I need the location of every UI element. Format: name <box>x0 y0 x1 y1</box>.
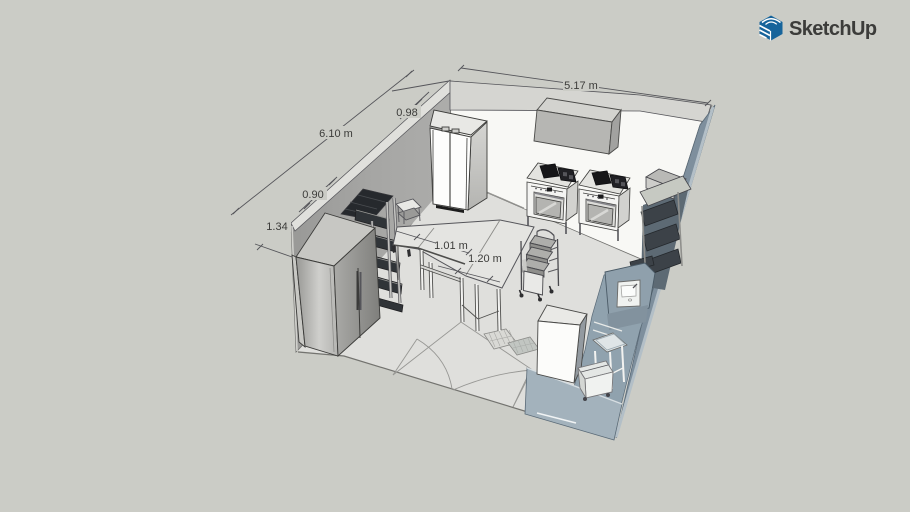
svg-text:5.17 m: 5.17 m <box>564 80 598 92</box>
svg-text:SketchUp: SketchUp <box>789 18 877 40</box>
svg-text:6.10 m: 6.10 m <box>319 128 353 140</box>
svg-text:1.34: 1.34 <box>266 221 287 233</box>
svg-text:0.98: 0.98 <box>396 107 417 119</box>
svg-text:0.90: 0.90 <box>302 189 323 201</box>
svg-text:1.01 m: 1.01 m <box>434 240 468 252</box>
svg-text:1.20 m: 1.20 m <box>468 253 502 265</box>
